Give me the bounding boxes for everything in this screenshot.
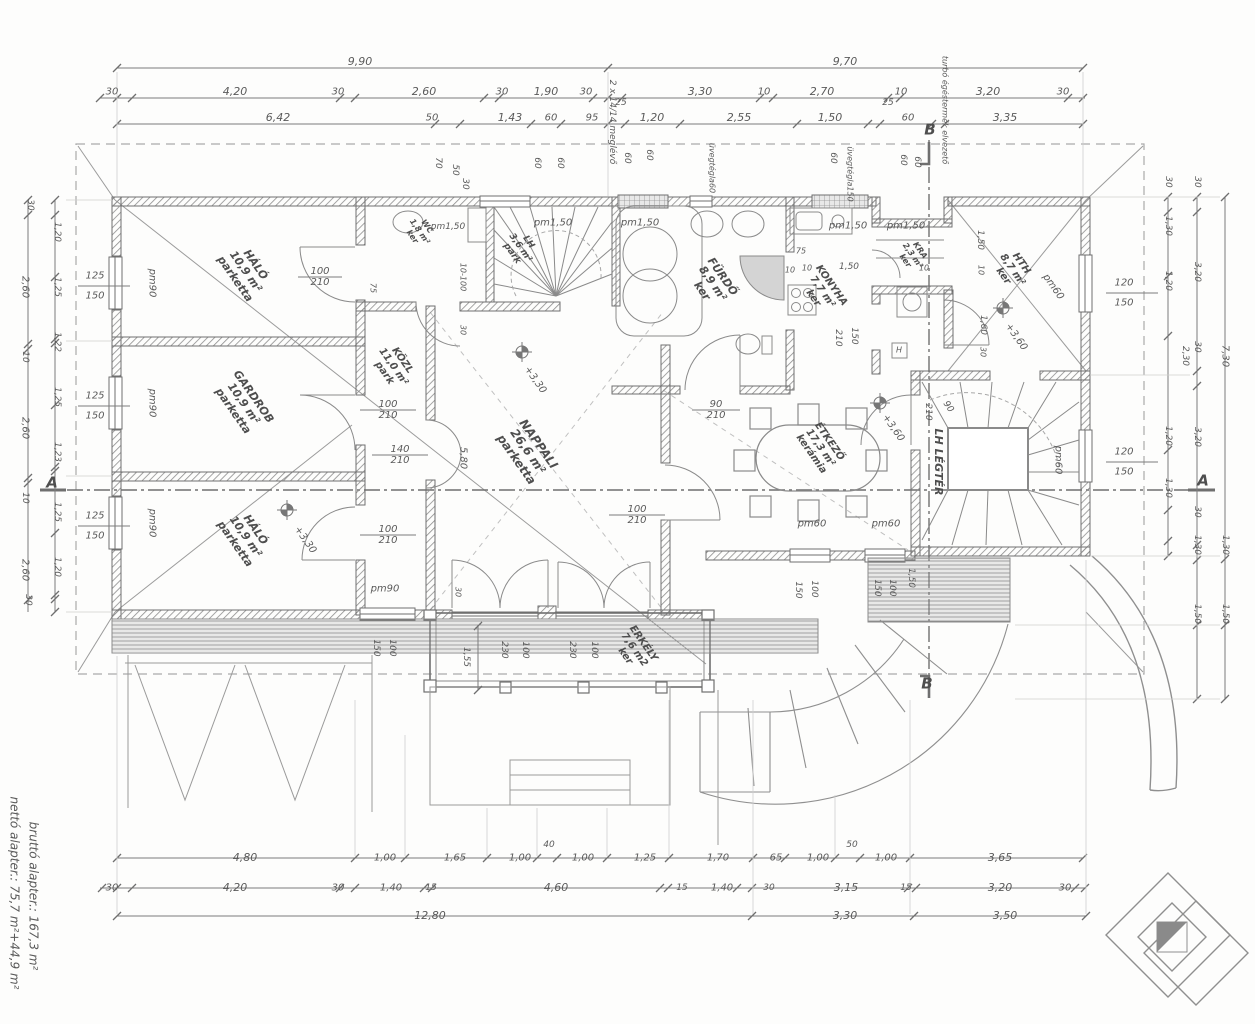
walls bbox=[112, 197, 1090, 619]
sink-icon bbox=[691, 211, 723, 237]
dining-table-icon bbox=[756, 425, 880, 491]
bathroom-fixtures bbox=[616, 206, 784, 354]
stair-tower bbox=[922, 382, 1079, 545]
terrace-right bbox=[868, 558, 1010, 622]
dining-set bbox=[734, 404, 887, 521]
hth-fixtures bbox=[892, 287, 927, 358]
dimension-ticks bbox=[24, 64, 1229, 920]
north-symbol bbox=[1106, 873, 1248, 1005]
sink-icon bbox=[393, 211, 423, 233]
floor-plan-canvas: 9,909,70304,20302,60301,9030253,30102,70… bbox=[0, 0, 1255, 1024]
stove-icon bbox=[788, 285, 816, 315]
wc-fixtures bbox=[393, 208, 486, 242]
stair-upper bbox=[494, 207, 612, 296]
floor-plan-drawing bbox=[0, 0, 1255, 1024]
terrace-left bbox=[112, 619, 818, 653]
entry-steps bbox=[430, 687, 718, 845]
elevation-markers bbox=[277, 298, 1013, 520]
boiler-icon bbox=[892, 343, 907, 358]
shower-icon bbox=[740, 256, 784, 300]
pergola bbox=[125, 655, 372, 812]
spec-label-rules bbox=[78, 277, 1158, 535]
sink-icon bbox=[732, 211, 764, 237]
